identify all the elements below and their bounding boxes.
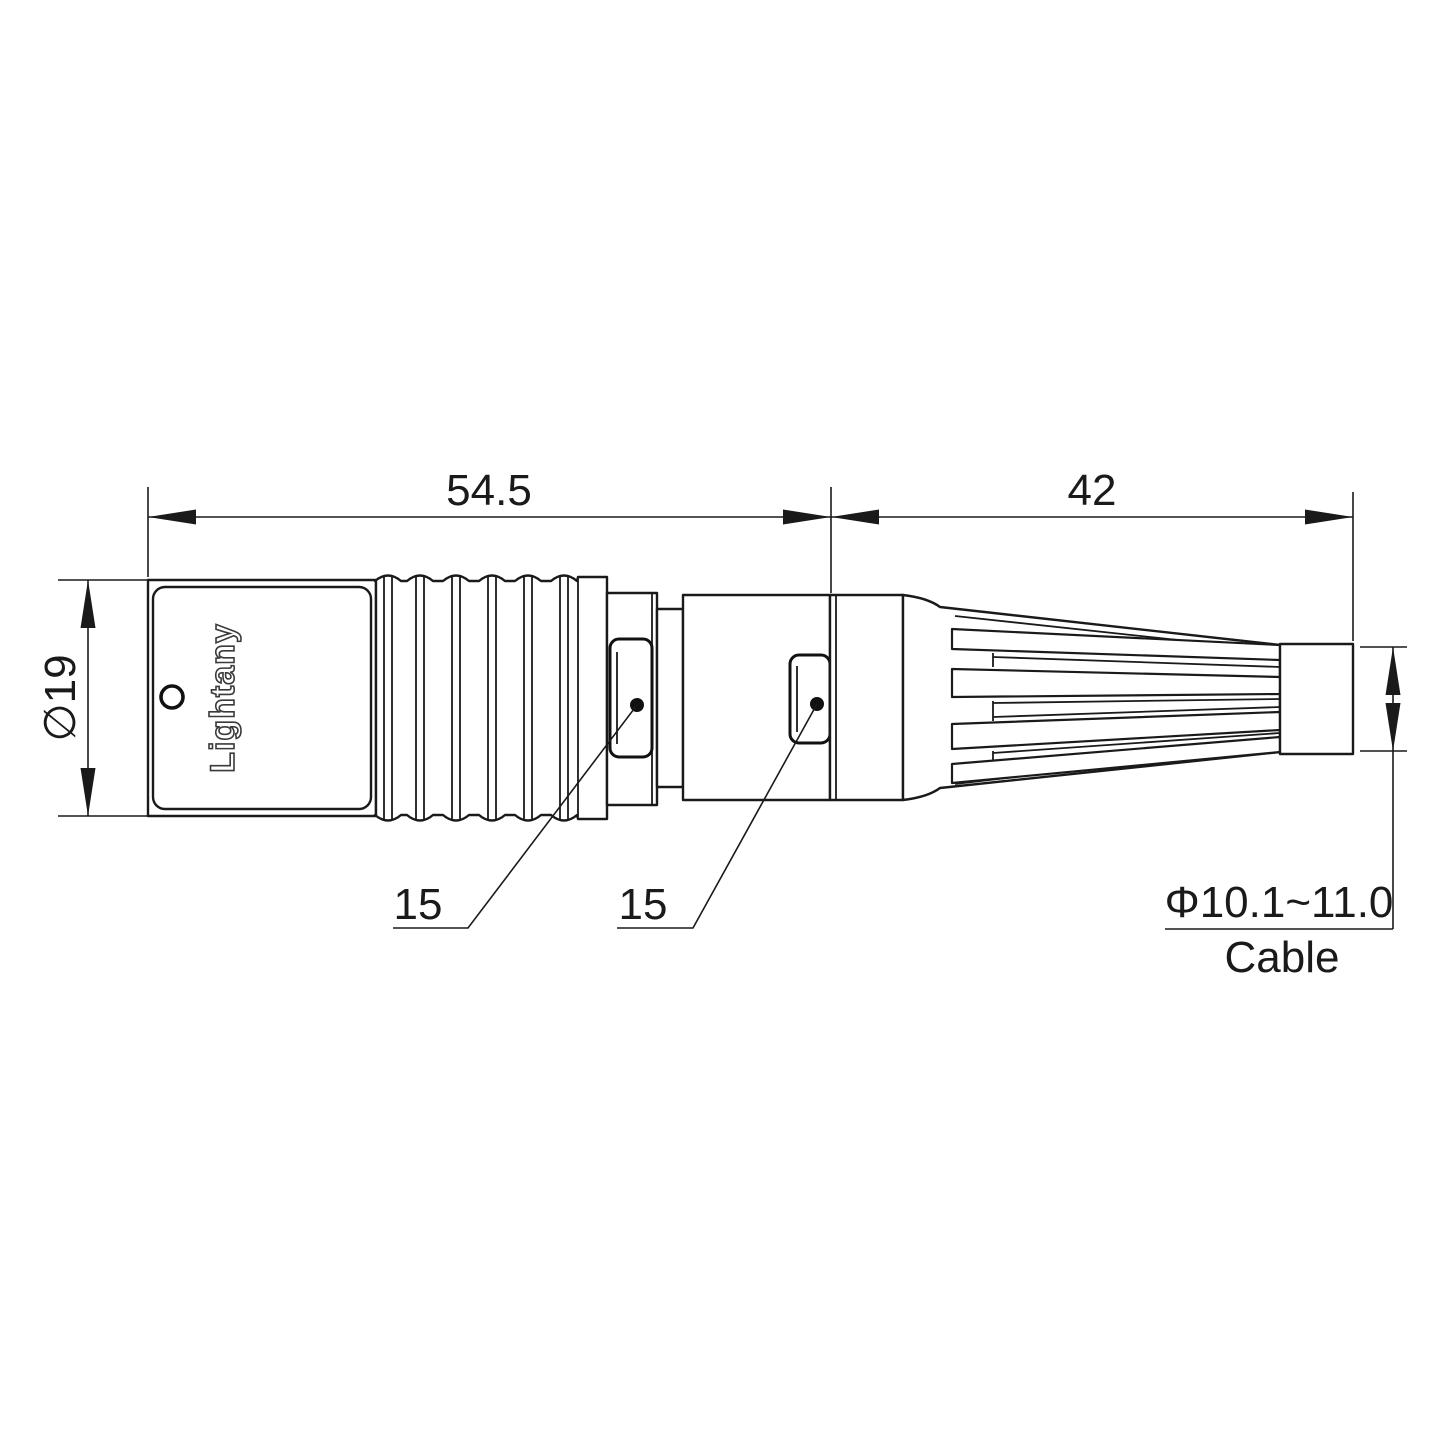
arrow-right [1305,510,1353,525]
leader-latch-rear-value: 15 [619,880,668,929]
cable-label: Cable [1225,933,1340,982]
dim-cable-diameter-value: Φ10.1~11.0 [1165,878,1394,927]
cable-end-sleeve [1280,644,1353,754]
arrow-up [1386,647,1401,695]
shell-hole [161,686,183,708]
backshell-collar [830,595,903,800]
dim-rear-length-value: 42 [1068,466,1117,515]
arrow-left [148,510,196,525]
brand-engraving: Lightany [204,623,242,773]
ribbed-grip [375,576,607,821]
front-shell-chamfer [153,587,371,809]
drawing-canvas: Lightany Lightany [0,0,1440,1440]
leader-latch-front-value: 15 [394,880,443,929]
latch-rear [790,655,830,743]
arrow-down [81,768,96,816]
connector-body: Lightany [148,575,1353,821]
dim-front-length: 54.5 [148,466,831,525]
strain-relief-boot [903,595,1280,800]
arrow-left [831,510,879,525]
dim-front-length-value: 54.5 [446,466,532,515]
dim-rear-length: 42 [831,466,1353,525]
neck-ring [657,609,683,787]
arrow-down [1386,703,1401,751]
dim-body-diameter-value: ∅19 [36,654,85,741]
arrow-right [783,510,831,525]
arrow-up [81,580,96,628]
dim-body-diameter: ∅19 [36,580,96,816]
connector-diagram: Lightany Lightany [0,0,1440,1440]
